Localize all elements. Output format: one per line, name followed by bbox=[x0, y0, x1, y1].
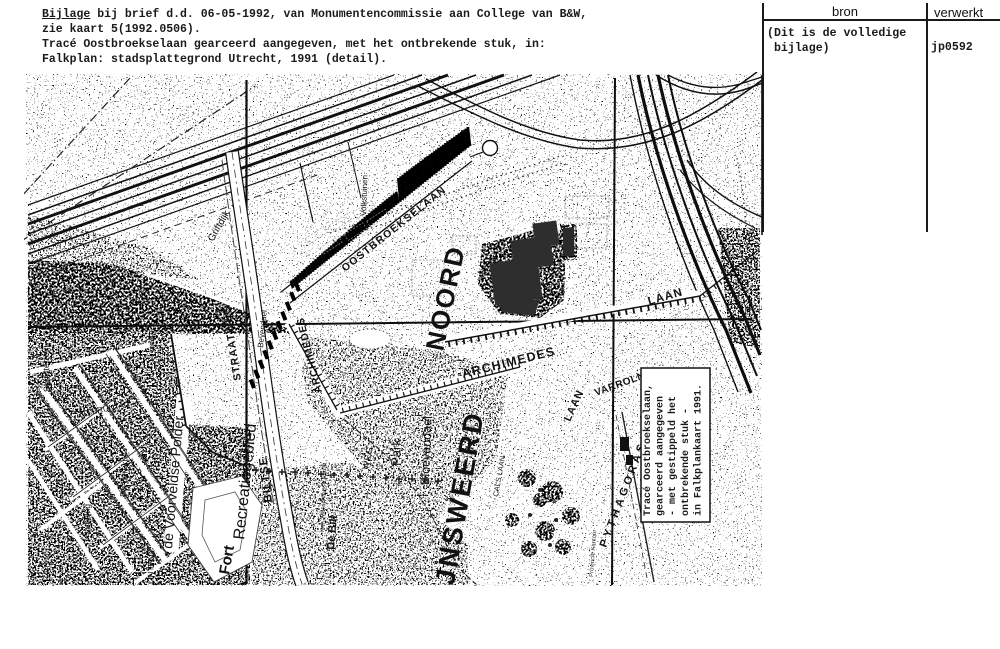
svg-text:Manege: Manege bbox=[149, 328, 157, 352]
svg-text:in Falkplankaart 1991.: in Falkplankaart 1991. bbox=[692, 384, 704, 516]
svg-text:Camping: Camping bbox=[81, 503, 92, 538]
svg-text:gearceerd aangegeven: gearceerd aangegeven bbox=[655, 396, 667, 516]
svg-text:Bloeyendael: Bloeyendael bbox=[418, 416, 434, 485]
svg-text:Tracé Oostbroekselaan,: Tracé Oostbroekselaan, bbox=[642, 384, 654, 516]
svg-text:Sportterrein: Sportterrein bbox=[40, 345, 52, 392]
svg-text:ontbrekende stuk -: ontbrekende stuk - bbox=[680, 408, 692, 516]
svg-text:Volkstuinen: Volkstuinen bbox=[359, 175, 369, 216]
svg-text:De Berekuil: De Berekuil bbox=[118, 453, 130, 497]
svg-text:LINTPAD: LINTPAD bbox=[146, 550, 156, 584]
svg-text:- met gestippeld het: - met gestippeld het bbox=[667, 396, 679, 516]
svg-text:Park: Park bbox=[388, 438, 404, 466]
